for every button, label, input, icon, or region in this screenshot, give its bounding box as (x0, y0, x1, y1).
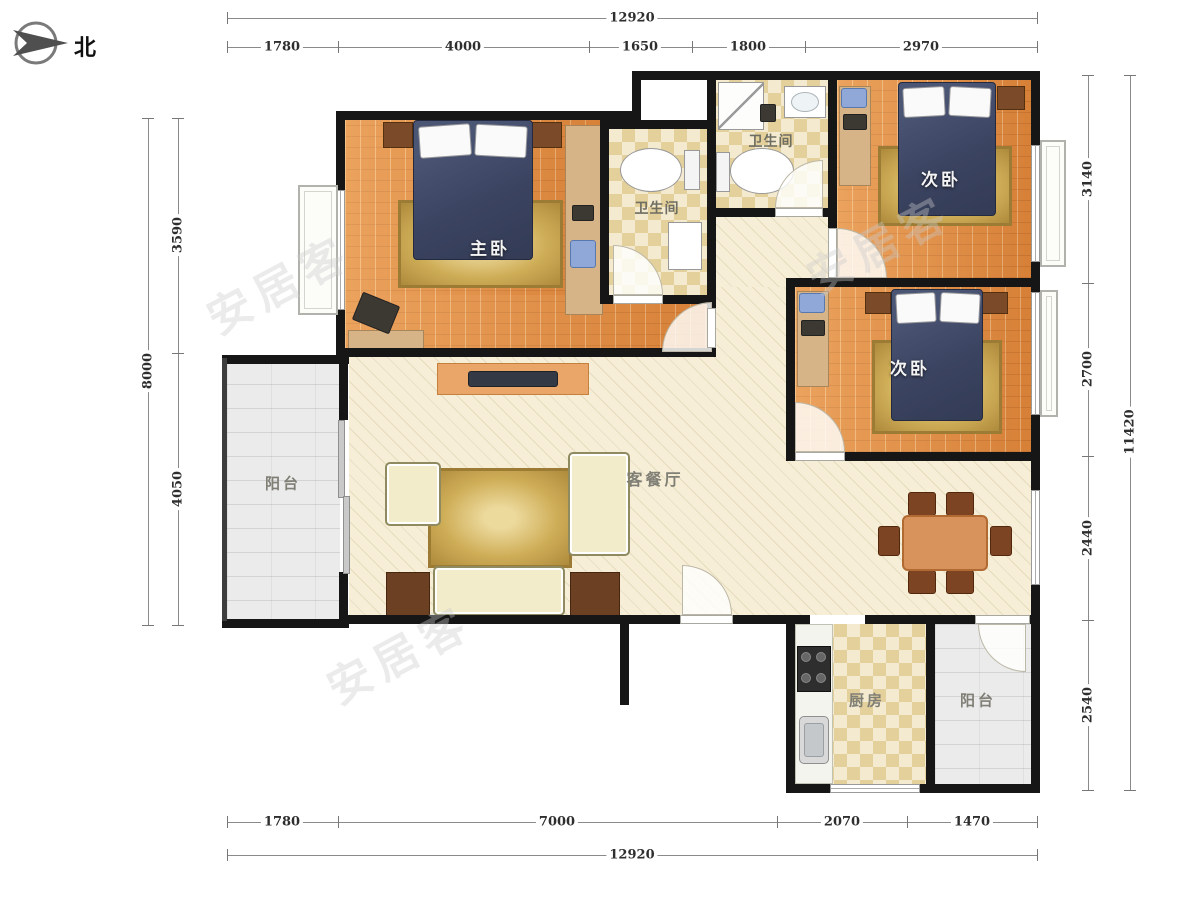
nightstand (865, 292, 891, 314)
washing-machine (760, 104, 776, 122)
entry-door-leaf (680, 615, 733, 624)
door-leaf (707, 308, 716, 348)
nightstand (997, 86, 1025, 110)
pillow (474, 124, 528, 159)
dimension-tick (338, 816, 339, 828)
corridor-floor (716, 208, 828, 287)
dimension-tick (1082, 456, 1094, 457)
dining-chair (878, 526, 900, 556)
bathroom-label: 卫生间 (749, 131, 794, 151)
door-leaf (975, 615, 1030, 624)
dimension-tick (692, 41, 693, 53)
dim-right-seg: 2700 (1081, 348, 1096, 390)
dim-top-total: 12920 (606, 11, 657, 26)
master-bedroom-label: 主卧 (470, 235, 510, 260)
dimension-tick (1124, 75, 1136, 76)
dimension-tick (1037, 12, 1038, 24)
dimension-tick (1082, 283, 1094, 284)
dimension-tick (589, 41, 590, 53)
side-table (570, 572, 620, 616)
dining-chair (946, 492, 974, 516)
north-label: 北 (74, 30, 96, 62)
wall (935, 784, 1040, 793)
dimension-tick (777, 816, 778, 828)
dim-left-total: 8000 (141, 350, 156, 392)
dimension-tick (172, 118, 184, 119)
dimension-tick (1037, 41, 1038, 53)
wall (707, 208, 775, 217)
wall (336, 111, 345, 190)
pillow (939, 292, 981, 324)
living-rug (428, 468, 572, 568)
dim-left-seg: 3590 (171, 214, 186, 256)
dim-bottom-seg: 7000 (536, 815, 578, 830)
dim-right-seg: 2440 (1081, 517, 1096, 559)
window-pane (304, 191, 332, 309)
dimension-tick (1082, 620, 1094, 621)
second-bedroom-label: 次卧 (921, 166, 961, 191)
balcony-label: 阳台 (265, 473, 301, 494)
dimension-tick (907, 816, 908, 828)
dim-right-seg: 2540 (1081, 684, 1096, 726)
dim-right-seg: 3140 (1081, 158, 1096, 200)
dim-bottom-total: 12920 (606, 848, 657, 863)
wall (339, 572, 348, 624)
burner (816, 673, 826, 683)
dimension-tick (1037, 816, 1038, 828)
wall (707, 71, 716, 308)
dimension-line (227, 822, 1037, 823)
nightstand (532, 122, 562, 148)
gas-stove (797, 646, 831, 692)
side-table (386, 572, 430, 616)
corner-shower (718, 82, 764, 130)
dimension-tick (227, 816, 228, 828)
wall (786, 278, 1040, 287)
dim-bottom-seg: 1780 (261, 815, 303, 830)
wall (795, 615, 810, 624)
door-leaf (795, 452, 845, 461)
pillow (895, 292, 937, 324)
bag (572, 205, 594, 221)
chair (801, 320, 825, 336)
wall (339, 355, 348, 420)
tv (468, 371, 558, 387)
armchair (385, 462, 441, 526)
sofa (433, 566, 565, 616)
dimension-tick (142, 625, 154, 626)
burner (801, 673, 811, 683)
dimension-tick (227, 41, 228, 53)
north-indicator: 北 (8, 16, 118, 70)
burner (816, 652, 826, 662)
wall (1031, 71, 1040, 145)
dimension-tick (1037, 849, 1038, 861)
dimension-tick (142, 118, 154, 119)
wall (336, 111, 641, 120)
window (1031, 490, 1040, 585)
sliding-door-panel (338, 420, 345, 498)
dim-top-seg: 1800 (727, 40, 769, 55)
wall (222, 619, 349, 628)
window (830, 784, 920, 793)
toilet-bowl (620, 148, 682, 192)
balcony-railing (222, 358, 227, 621)
dining-table (902, 515, 988, 571)
floor-plan: 主卧 卫生间 卫生间 次卧 次卧 客餐厅 阳台 厨房 阳台 12920 1780… (0, 0, 1200, 900)
bay-window (298, 185, 338, 315)
compass-arrow (13, 30, 68, 56)
bedroom2-bed (898, 82, 996, 216)
kitchen-sink (799, 716, 829, 764)
dim-right-total: 11420 (1123, 406, 1138, 457)
dim-top-seg: 4000 (442, 40, 484, 55)
door-leaf (828, 228, 837, 278)
dim-top-seg: 2970 (900, 40, 942, 55)
chair (799, 293, 825, 313)
pillow (418, 123, 472, 159)
bay-window (1040, 290, 1058, 417)
wall (865, 615, 935, 624)
wall (600, 120, 609, 304)
window (1031, 292, 1040, 415)
dimension-tick (227, 12, 228, 24)
wall (620, 615, 629, 705)
corridor-floor (716, 287, 795, 360)
dining-chair (990, 526, 1012, 556)
wall (336, 348, 716, 357)
second-bedroom-label: 次卧 (890, 355, 930, 380)
bathroom-label: 卫生间 (635, 198, 680, 218)
kitchen-label: 厨房 (849, 690, 885, 711)
door-leaf (775, 208, 823, 217)
window-pane (1046, 146, 1060, 261)
chair (841, 88, 867, 108)
wall (222, 355, 349, 364)
dining-chair (946, 570, 974, 594)
dimension-tick (1082, 75, 1094, 76)
wall (632, 71, 641, 120)
dimension-tick (1082, 790, 1094, 791)
dining-chair (908, 492, 936, 516)
door-leaf (613, 295, 663, 304)
window-pane (1046, 296, 1052, 411)
sink-basin (804, 723, 824, 757)
dining-chair (908, 570, 936, 594)
toilet-tank (684, 150, 700, 190)
dim-top-seg: 1650 (619, 40, 661, 55)
chair (570, 240, 596, 268)
wall (786, 278, 795, 461)
dimension-tick (805, 41, 806, 53)
wall (1031, 262, 1040, 292)
loveseat (568, 452, 630, 556)
pillow (948, 86, 992, 118)
wall (1031, 415, 1040, 490)
nightstand (383, 122, 413, 148)
wall (828, 71, 837, 228)
dim-bottom-seg: 1470 (951, 815, 993, 830)
dimension-line (178, 118, 179, 625)
wall (336, 310, 345, 357)
sliding-door-panel (343, 496, 350, 574)
dimension-tick (172, 353, 184, 354)
wall (786, 615, 795, 793)
balcony-label: 阳台 (960, 690, 996, 711)
dim-top-seg: 1780 (261, 40, 303, 55)
wall (935, 615, 975, 624)
wall (1031, 615, 1040, 793)
dim-left-seg: 4050 (171, 468, 186, 510)
north-arrow-icon (8, 16, 118, 70)
shower-tray (668, 222, 702, 270)
tv-console (437, 363, 589, 395)
wall (845, 452, 1040, 461)
nightstand (980, 292, 1008, 314)
living-dining-label: 客餐厅 (626, 466, 683, 490)
basin-bowl (791, 92, 819, 112)
dimension-tick (227, 849, 228, 861)
burner (801, 652, 811, 662)
wall (926, 615, 935, 793)
window (1031, 145, 1040, 262)
pillow (902, 86, 946, 118)
chair (843, 114, 867, 130)
dimension-tick (1124, 790, 1136, 791)
wall (600, 120, 716, 129)
dimension-tick (338, 41, 339, 53)
washbasin (784, 86, 826, 118)
dim-bottom-seg: 2070 (821, 815, 863, 830)
bay-window (1040, 140, 1066, 267)
toilet-tank (716, 152, 730, 192)
dimension-tick (172, 625, 184, 626)
